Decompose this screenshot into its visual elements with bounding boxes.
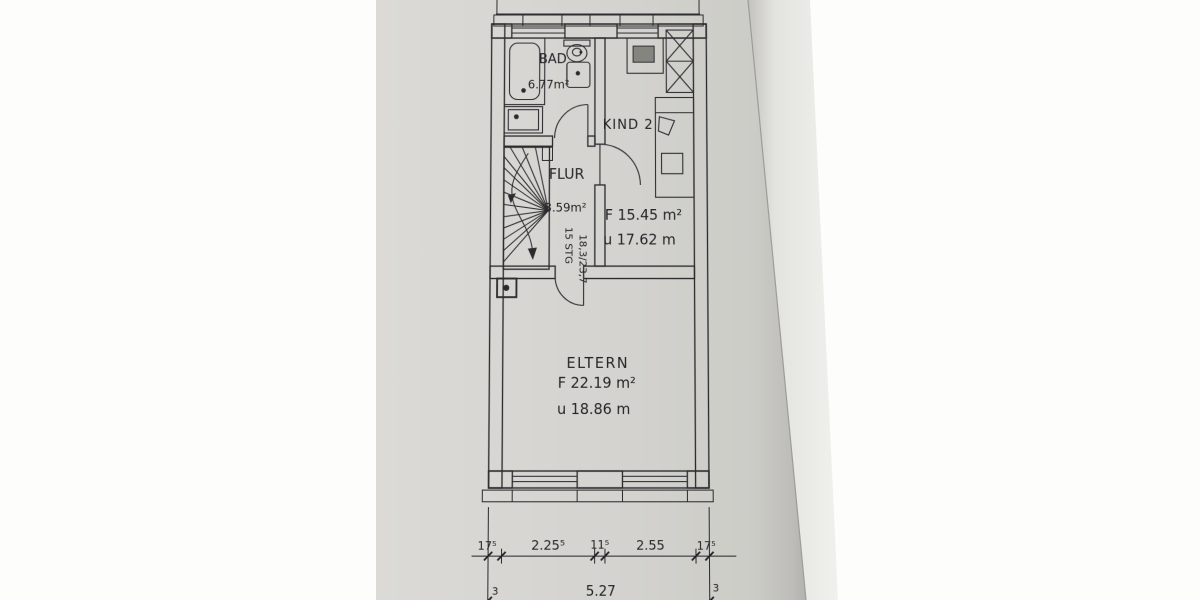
- desk: [627, 38, 663, 73]
- bathtub: [504, 38, 545, 105]
- photo-of-floor-plan: BAD 6.77m² FLUR 3.59m² 15 STG 18,3/23,7 …: [0, 0, 1200, 600]
- duct-box: [497, 279, 516, 298]
- floor-plan-svg: BAD 6.77m² FLUR 3.59m² 15 STG 18,3/23,7 …: [367, 0, 845, 600]
- toilet: [564, 40, 590, 62]
- dim-wall-mid: 11⁵: [590, 538, 609, 552]
- door-kind2: [600, 144, 640, 185]
- dim-total-width: 5.27: [586, 584, 616, 600]
- room-perimeter-eltern: u 18.86 m: [557, 401, 630, 418]
- stair-steps-label: 15 STG: [562, 227, 573, 264]
- dim-offset-left: 3: [492, 586, 499, 598]
- bottom-window-sill: [482, 490, 713, 502]
- window-bad: [512, 28, 565, 33]
- room-perimeter-kind2: u 17.62 m: [603, 232, 676, 248]
- window-kind2: [617, 28, 658, 33]
- room-area-flur: 3.59m²: [544, 200, 586, 214]
- room-area-kind2: F 15.45 m²: [605, 207, 682, 223]
- dim-bad-flur-width: 2.25⁵: [531, 537, 565, 553]
- dim-offset-right: 3: [713, 583, 720, 595]
- bed: [655, 98, 694, 198]
- dim-wall-right: 17⁵: [697, 539, 716, 553]
- window-eltern-left: [512, 476, 577, 481]
- room-label-kind2: KIND 2: [603, 118, 654, 133]
- room-label-flur: FLUR: [549, 167, 585, 183]
- roof-overhang-outline: [496, 0, 700, 14]
- sink: [567, 62, 590, 87]
- room-area-bad: 6.77m²: [528, 77, 570, 91]
- dimension-chain: 17⁵ 2.25⁵ 11⁵ 2.55 17⁵ 3 5.27 3: [463, 507, 747, 600]
- exterior-walls: [489, 24, 709, 488]
- stair-rise-run: 18,3/23,7: [576, 234, 587, 283]
- room-label-bad: BAD: [539, 52, 567, 67]
- shower-tray: [504, 107, 542, 133]
- door-bad: [555, 105, 588, 138]
- dim-wall-left: 17⁵: [478, 539, 497, 553]
- floor-plan-drawing: BAD 6.77m² FLUR 3.59m² 15 STG 18,3/23,7 …: [367, 0, 845, 600]
- window-eltern-right: [622, 476, 687, 481]
- room-area-eltern: F 22.19 m²: [558, 375, 636, 392]
- room-label-eltern: ELTERN: [566, 355, 629, 372]
- stair-treads: [503, 147, 548, 262]
- wardrobe: [666, 30, 693, 92]
- dim-kind2-width: 2.55: [636, 537, 665, 553]
